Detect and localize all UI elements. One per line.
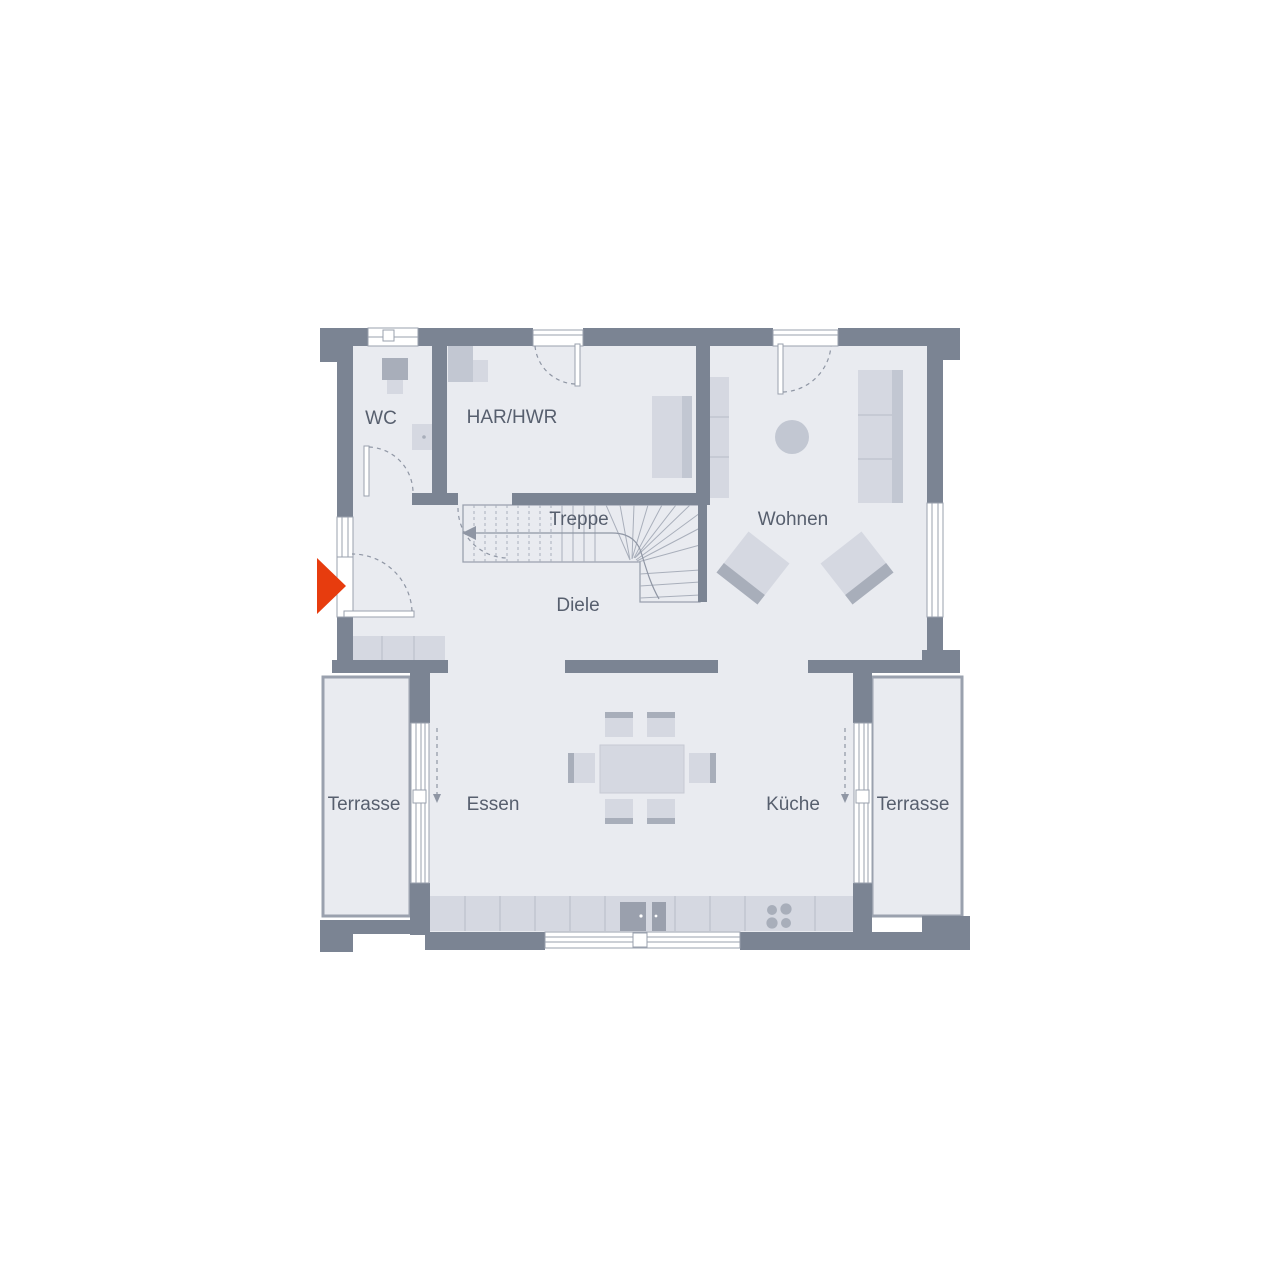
kitchen-counter bbox=[430, 896, 853, 931]
diele-sideboard bbox=[350, 636, 445, 661]
wc-sink bbox=[412, 424, 432, 450]
terrace-left-slider bbox=[411, 723, 429, 883]
bottom-patio-window bbox=[545, 932, 740, 948]
toilet-cistern bbox=[382, 358, 408, 380]
floor-plan-canvas: WC HAR/HWR Treppe Wohnen Diele Terrasse … bbox=[0, 0, 1280, 1280]
tv-sideboard bbox=[708, 377, 729, 498]
sofa bbox=[858, 370, 903, 503]
toilet-bowl bbox=[387, 380, 403, 394]
room-label-essen: Essen bbox=[467, 794, 520, 815]
coffee-table bbox=[775, 420, 809, 454]
room-label-terrasse-left: Terrasse bbox=[328, 794, 401, 815]
room-label-wc: WC bbox=[365, 408, 397, 429]
room-label-terrasse-right: Terrasse bbox=[877, 794, 950, 815]
room-label-diele: Diele bbox=[556, 595, 599, 616]
dining-table bbox=[600, 745, 684, 793]
wohnen-window bbox=[927, 503, 943, 617]
wc-window bbox=[368, 328, 418, 346]
room-label-wohnen: Wohnen bbox=[758, 509, 828, 530]
room-label-har-hwr: HAR/HWR bbox=[467, 407, 558, 428]
terrace-right-slider bbox=[854, 723, 872, 883]
entry-sidelight-window bbox=[337, 517, 353, 557]
dishwasher bbox=[652, 902, 666, 931]
room-label-treppe: Treppe bbox=[549, 509, 609, 530]
room-label-kueche: Küche bbox=[766, 794, 820, 815]
